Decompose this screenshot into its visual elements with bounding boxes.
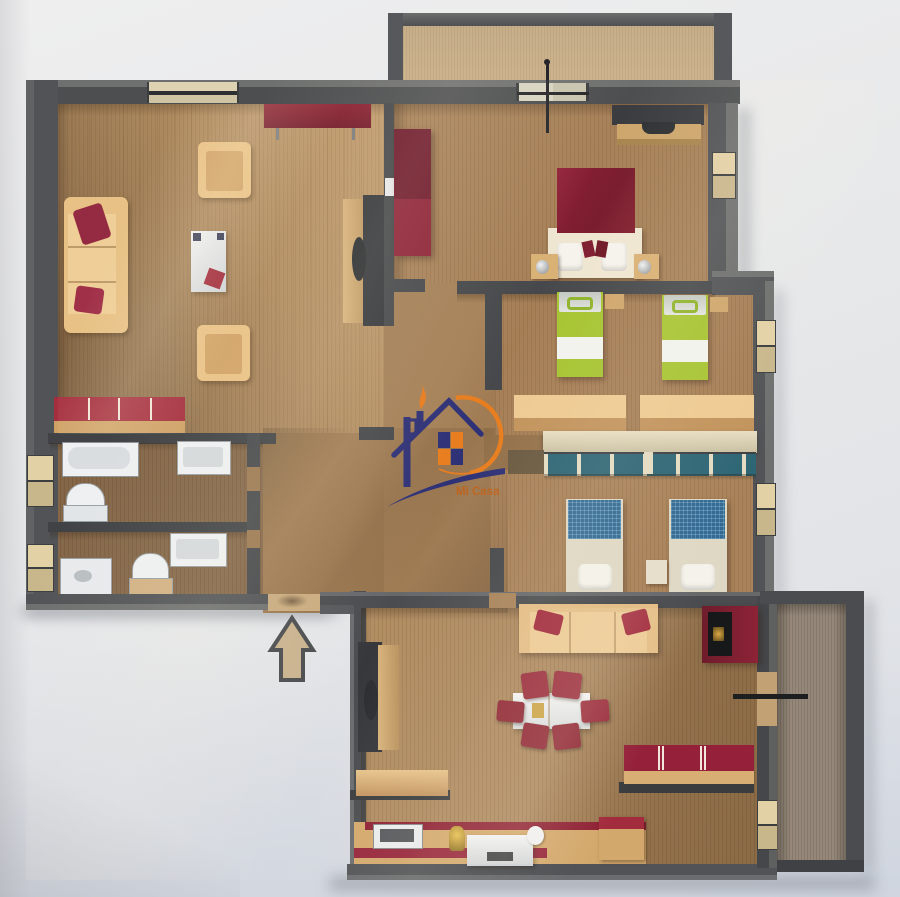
svg-text:Mi Casa: Mi Casa bbox=[456, 486, 500, 498]
